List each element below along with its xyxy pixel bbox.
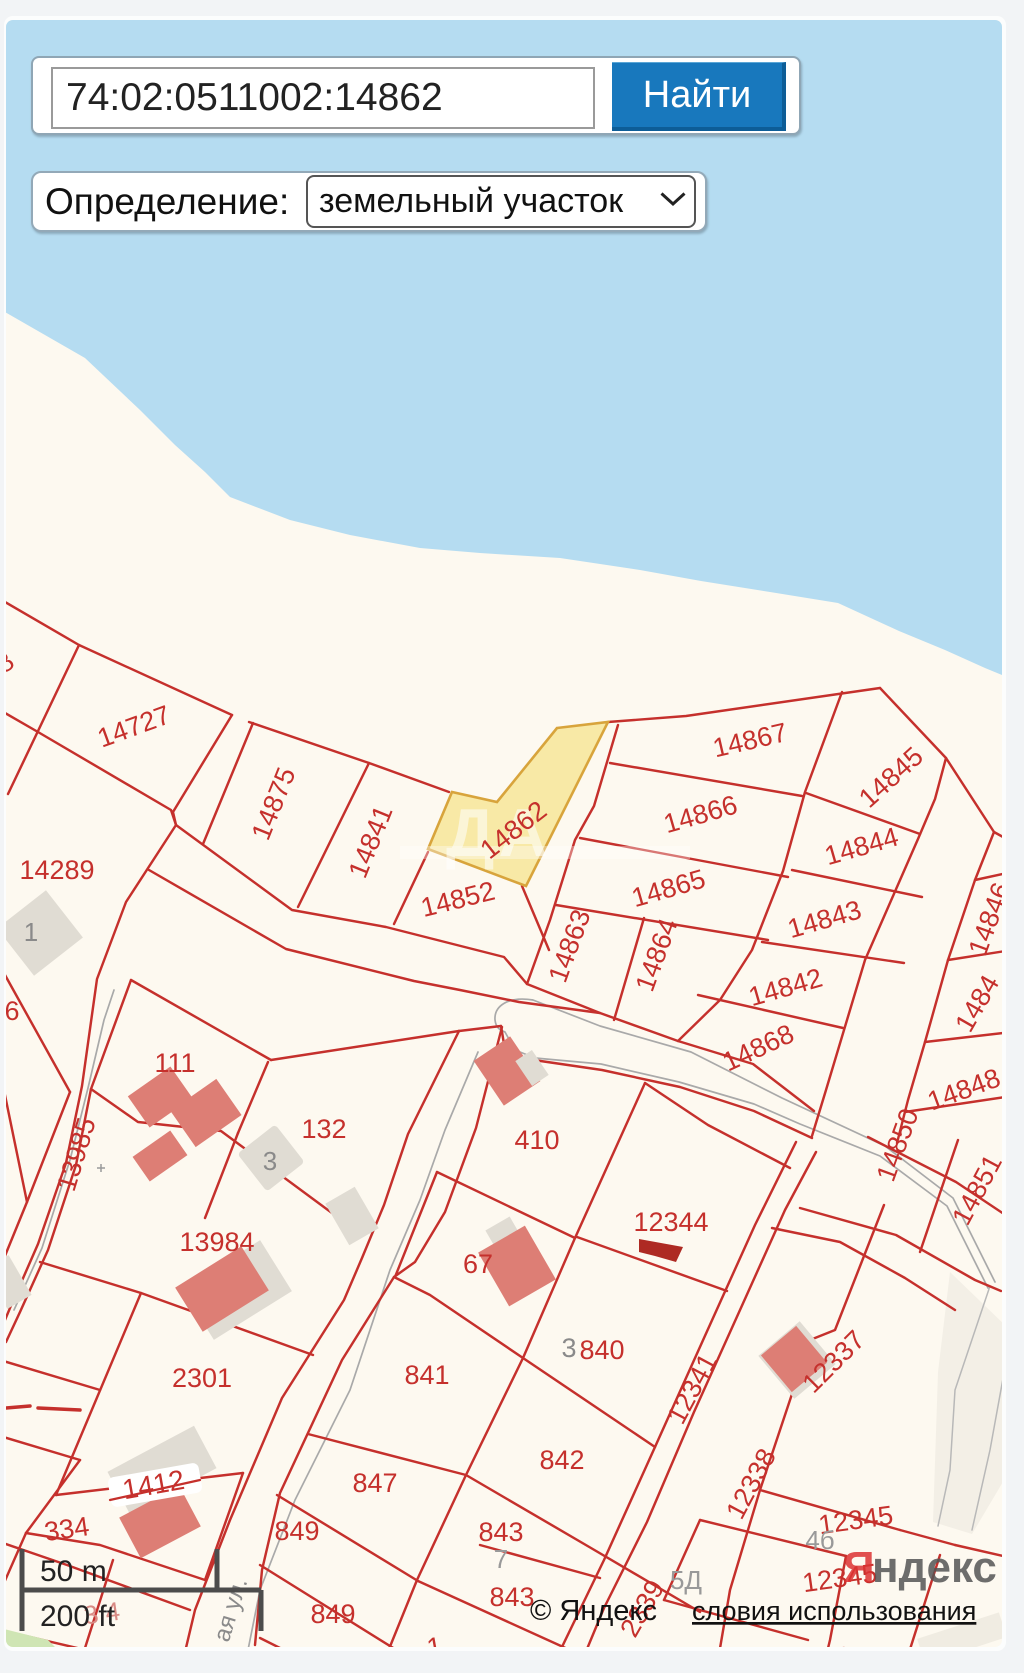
svg-text:334: 334 xyxy=(42,1511,91,1547)
svg-text:1: 1 xyxy=(24,917,38,947)
svg-text:4б: 4б xyxy=(805,1525,834,1555)
svg-text:© Яндекс: © Яндекс xyxy=(530,1595,657,1627)
svg-text:843: 843 xyxy=(489,1582,534,1612)
svg-text:3: 3 xyxy=(561,1333,576,1363)
svg-text:132: 132 xyxy=(301,1114,346,1144)
svg-text:840: 840 xyxy=(579,1335,624,1365)
svg-text:842: 842 xyxy=(539,1445,584,1475)
svg-text:841: 841 xyxy=(404,1360,449,1390)
svg-text:2301: 2301 xyxy=(172,1363,232,1393)
svg-text:14289: 14289 xyxy=(19,855,94,885)
svg-text:847: 847 xyxy=(352,1468,397,1498)
svg-text:словия использования: словия использования xyxy=(692,1596,976,1626)
svg-text:410: 410 xyxy=(514,1125,559,1155)
svg-text:849: 849 xyxy=(310,1599,355,1629)
svg-text:ндекс: ндекс xyxy=(872,1543,997,1592)
svg-text:12344: 12344 xyxy=(633,1207,708,1237)
svg-text:7: 7 xyxy=(494,1544,508,1574)
svg-text:50 m: 50 m xyxy=(40,1555,107,1588)
svg-text:5Д: 5Д xyxy=(670,1565,702,1595)
svg-text:849: 849 xyxy=(274,1516,319,1546)
svg-text:6: 6 xyxy=(4,996,19,1026)
svg-text:111: 111 xyxy=(154,1048,195,1078)
svg-text:843: 843 xyxy=(478,1517,523,1547)
svg-text:67: 67 xyxy=(463,1249,493,1279)
svg-text:200 ft: 200 ft xyxy=(40,1600,116,1633)
svg-text:3: 3 xyxy=(263,1146,277,1176)
svg-text:Я: Я xyxy=(843,1543,875,1592)
svg-text:13984: 13984 xyxy=(179,1227,254,1257)
